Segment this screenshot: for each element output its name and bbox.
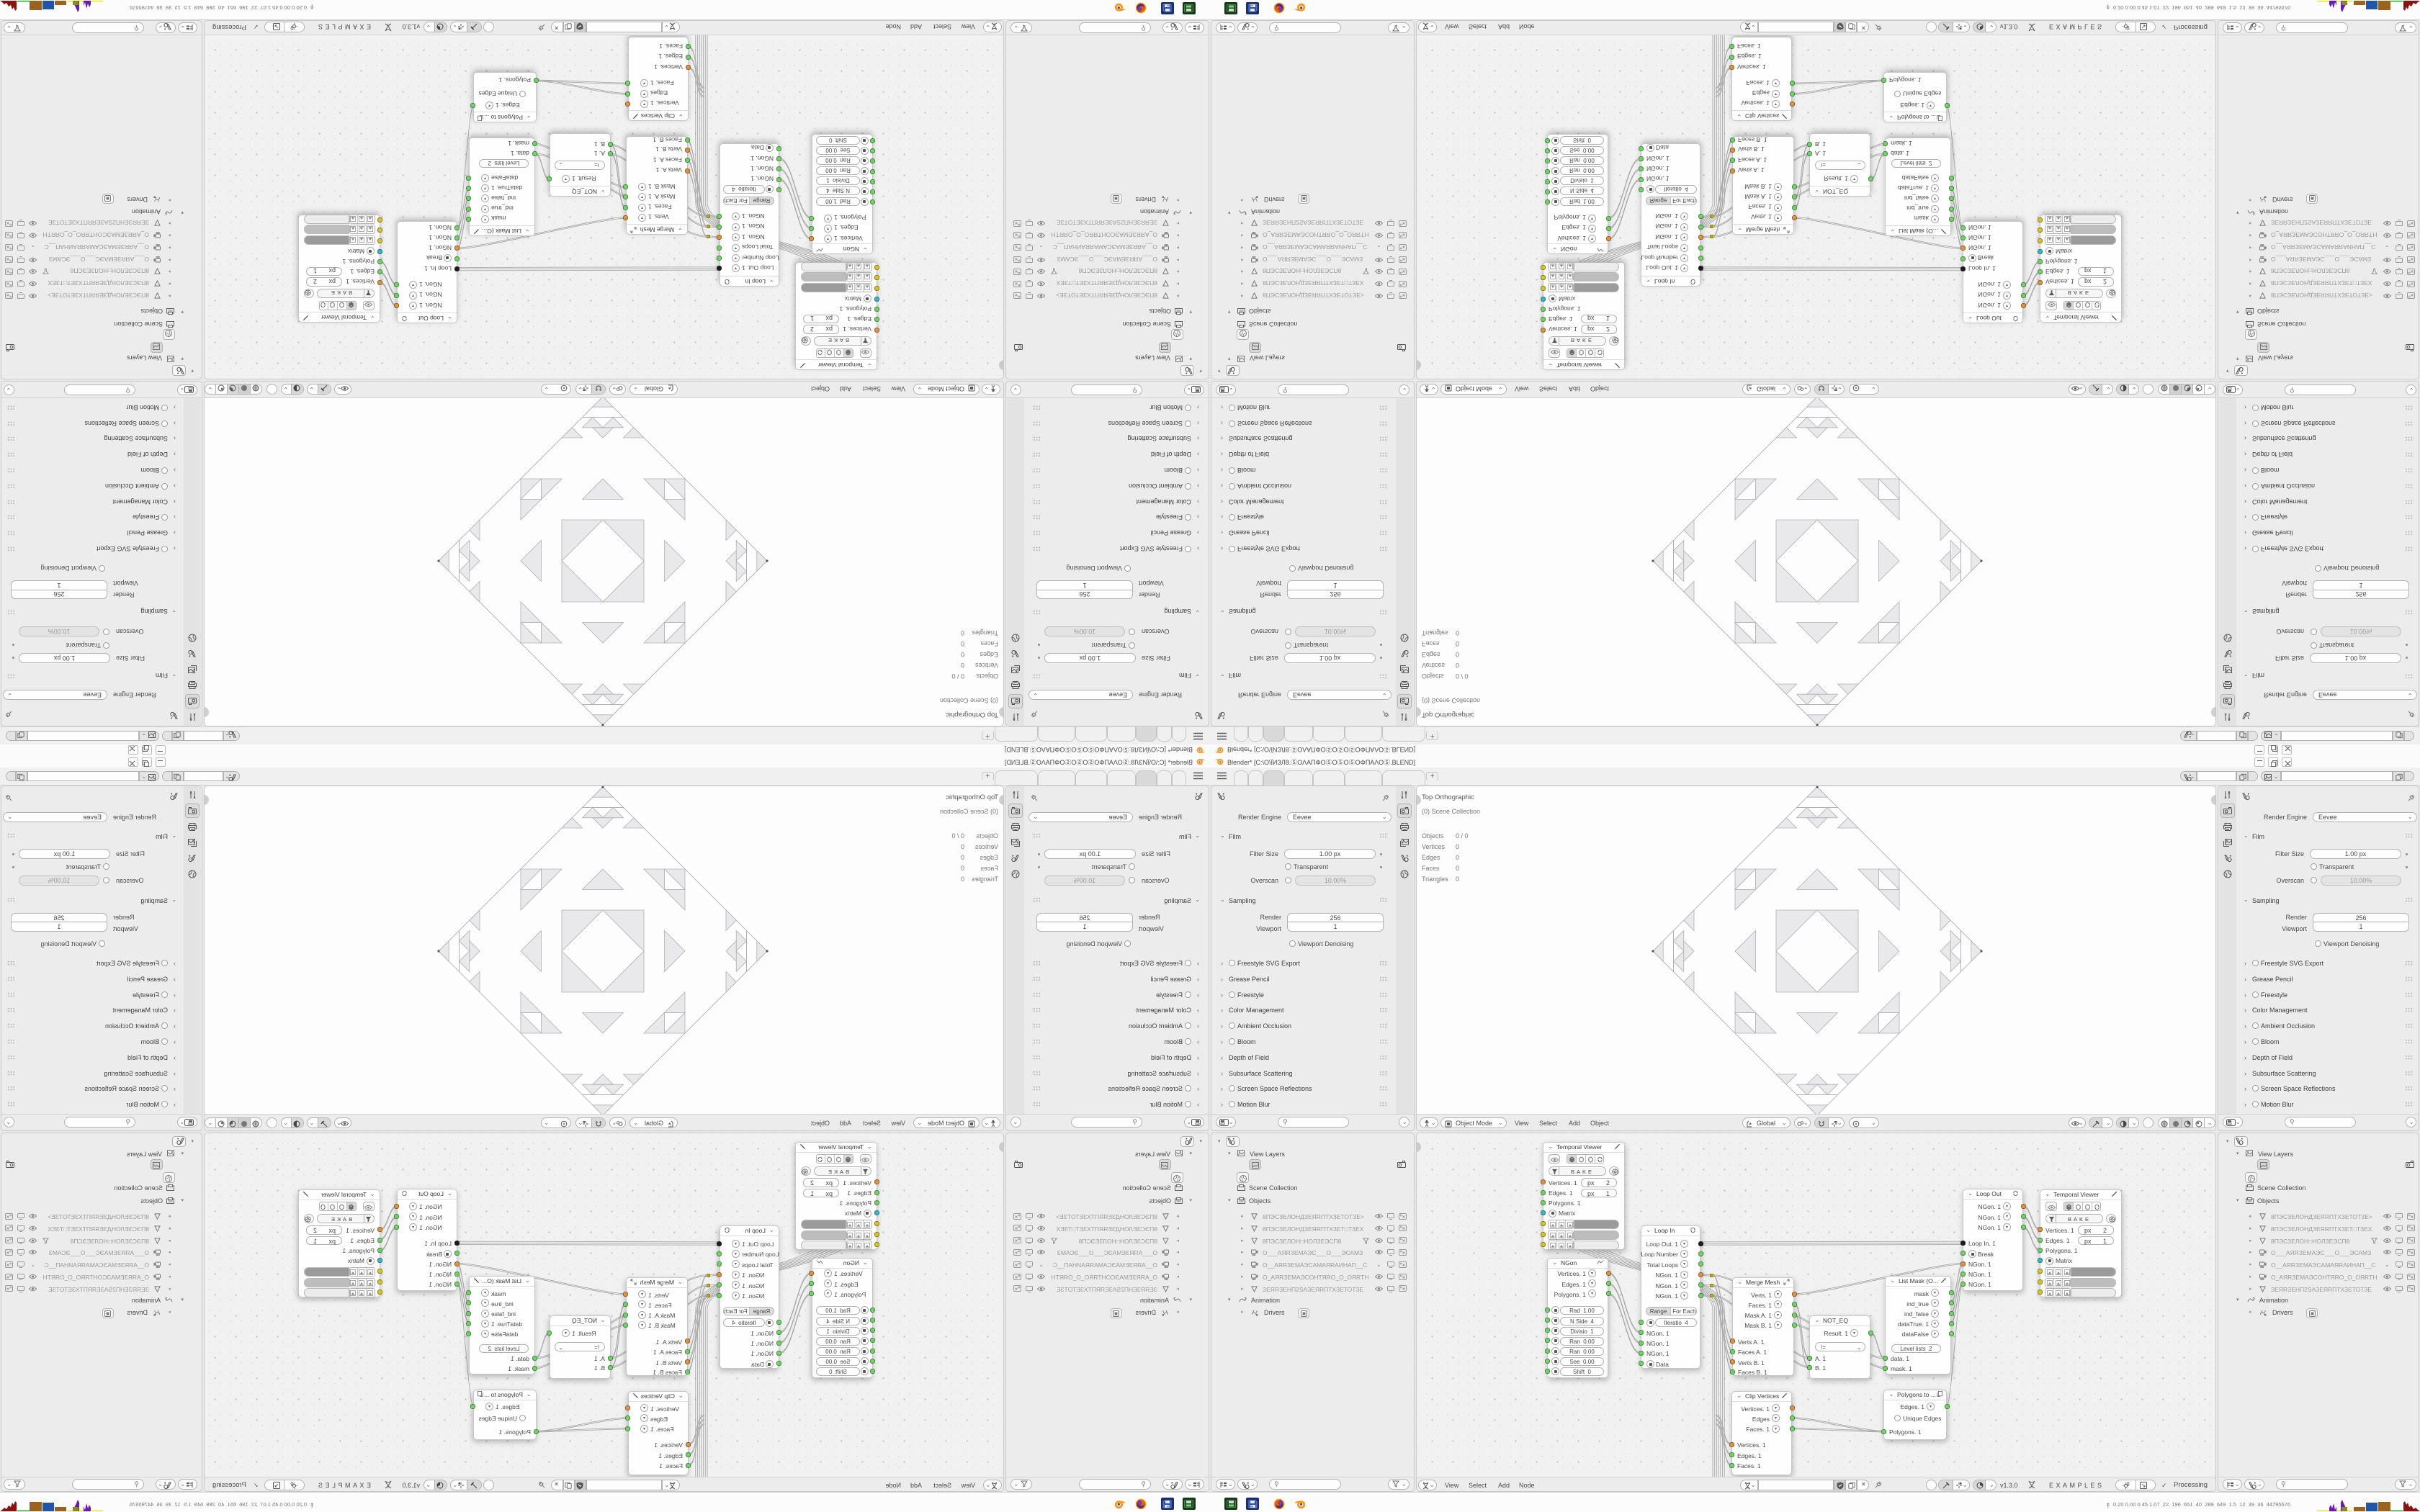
svg-text:64: 64 (1250, 1505, 1253, 1508)
svg-text:64: 64 (1250, 4, 1253, 7)
svg-text:64: 64 (1167, 4, 1170, 7)
svg-text:64: 64 (1167, 1505, 1170, 1508)
